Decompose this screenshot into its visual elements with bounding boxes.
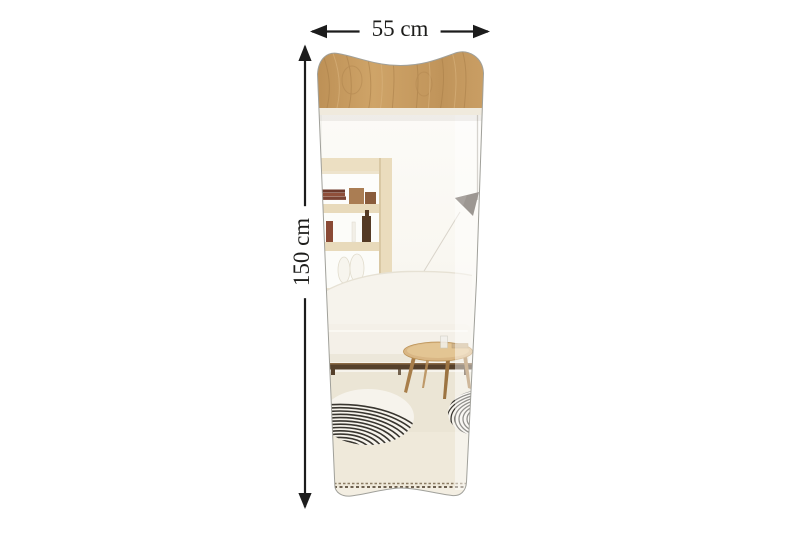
arrow-head-left-icon bbox=[310, 25, 327, 38]
mirror-wood-top bbox=[305, 40, 500, 121]
product-image-canvas: 55 cm 150 cm bbox=[0, 0, 800, 533]
arrow-head-up-icon bbox=[298, 45, 311, 62]
arrow-head-right-icon bbox=[473, 25, 490, 38]
reflection-shelf-niche bbox=[316, 158, 392, 290]
mirror-product-illustration bbox=[0, 0, 800, 533]
table-glass bbox=[441, 336, 448, 348]
glass-sheen bbox=[455, 105, 480, 490]
arrow-head-down-icon bbox=[298, 493, 311, 509]
height-dimension-label: 150 cm bbox=[289, 206, 315, 298]
width-dimension-label: 55 cm bbox=[360, 16, 441, 42]
